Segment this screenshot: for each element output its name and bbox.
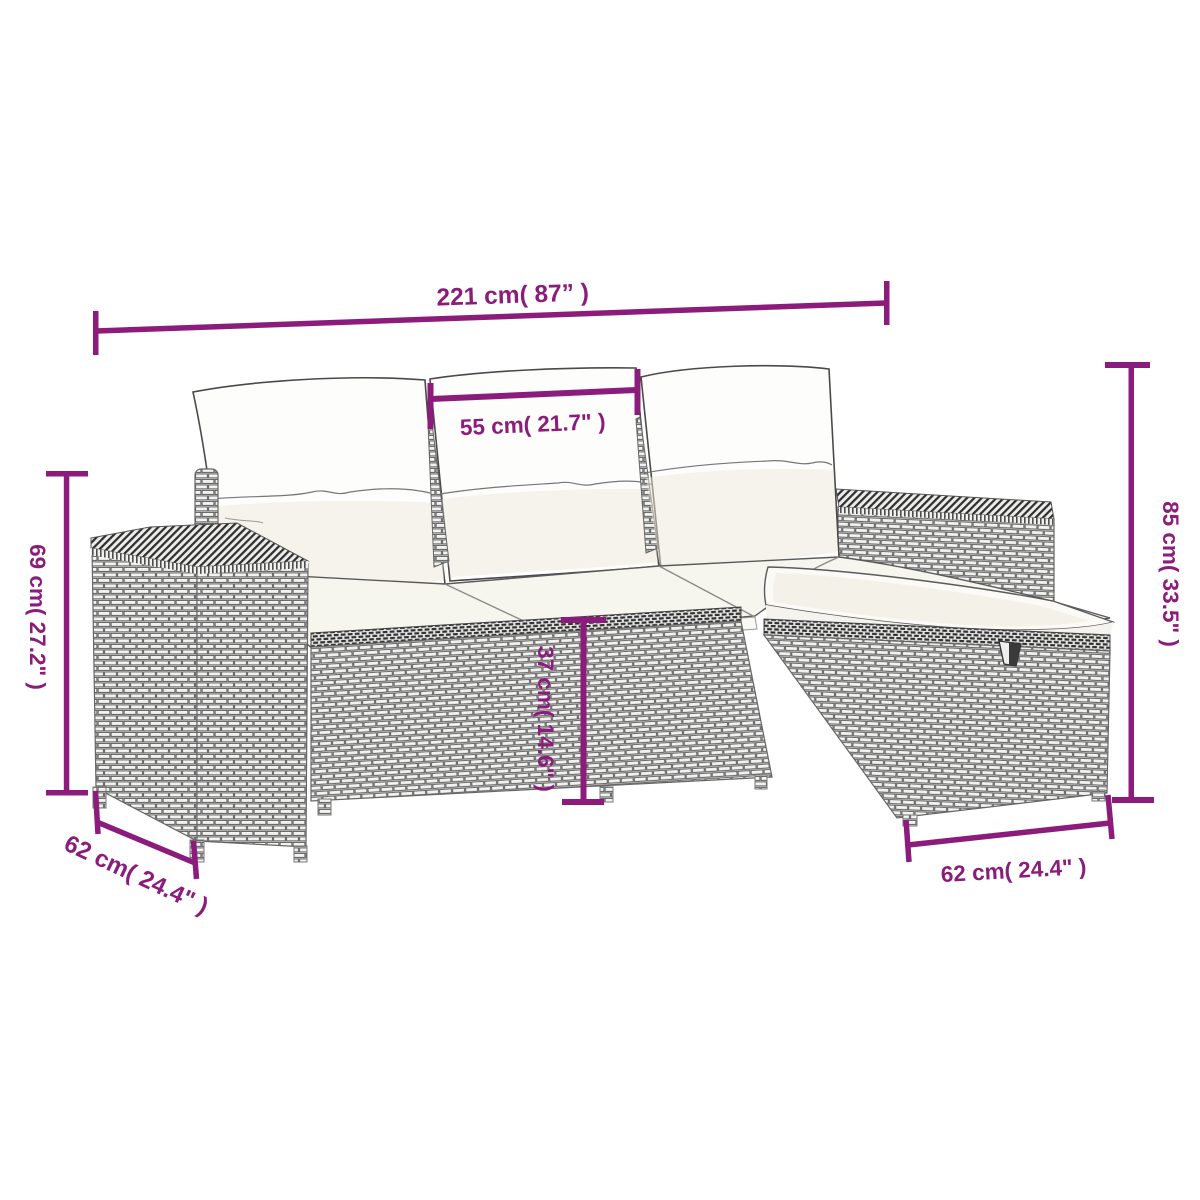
svg-text:221 cm( 87” ): 221 cm( 87” ): [436, 279, 589, 311]
svg-text:37 cm( 14.6" ): 37 cm( 14.6" ): [533, 646, 558, 792]
svg-text:69 cm( 27.2" ): 69 cm( 27.2" ): [25, 544, 50, 690]
svg-text:85 cm( 33.5" ): 85 cm( 33.5" ): [1158, 501, 1183, 647]
